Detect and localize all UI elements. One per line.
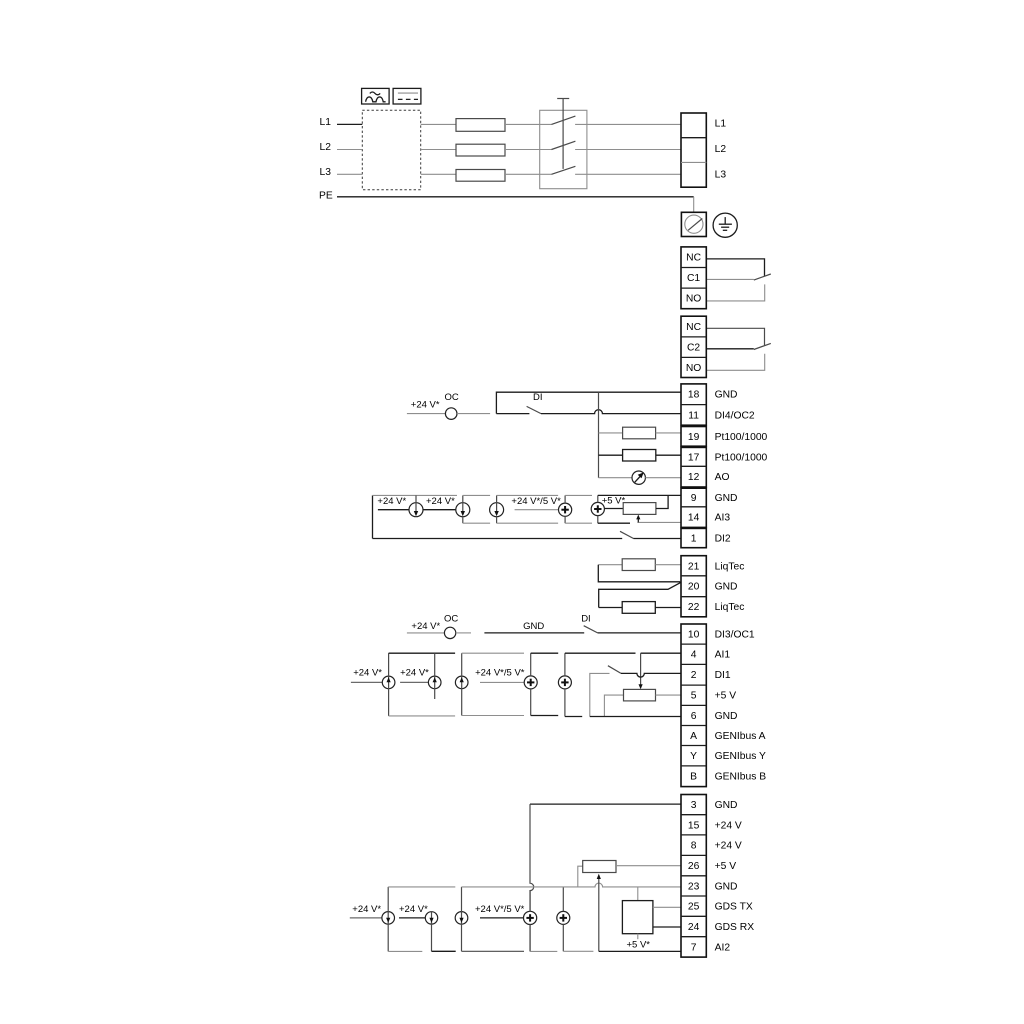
svg-text:AI3: AI3	[715, 513, 731, 524]
svg-text:C1: C1	[687, 273, 700, 284]
svg-text:NO: NO	[686, 294, 701, 305]
svg-text:2: 2	[691, 670, 697, 681]
svg-text:4: 4	[691, 650, 697, 661]
svg-text:GND: GND	[715, 800, 738, 811]
svg-text:L3: L3	[320, 167, 332, 178]
svg-text:+24 V*/5 V*: +24 V*/5 V*	[475, 904, 525, 915]
svg-text:DI4/OC2: DI4/OC2	[715, 410, 755, 421]
svg-text:DI1: DI1	[715, 670, 731, 681]
svg-text:11: 11	[688, 410, 699, 421]
svg-text:AO: AO	[715, 472, 730, 483]
svg-text:24: 24	[688, 922, 700, 933]
svg-text:L3: L3	[715, 170, 727, 181]
svg-text:+24 V*: +24 V*	[411, 621, 440, 632]
svg-text:+24 V*: +24 V*	[353, 667, 382, 678]
svg-text:GND: GND	[523, 621, 544, 632]
svg-text:GENIbus Y: GENIbus Y	[715, 751, 766, 762]
svg-text:19: 19	[688, 432, 700, 443]
svg-text:NC: NC	[686, 322, 701, 333]
svg-text:+24 V: +24 V	[715, 820, 742, 831]
svg-text:Pt100/1000: Pt100/1000	[715, 452, 768, 463]
svg-text:DI: DI	[533, 392, 543, 403]
svg-text:DI2: DI2	[715, 534, 731, 545]
svg-text:+5 V: +5 V	[715, 691, 737, 702]
svg-text:8: 8	[691, 841, 697, 852]
svg-text:7: 7	[691, 942, 697, 953]
svg-text:GDS RX: GDS RX	[715, 922, 755, 933]
svg-text:GENIbus A: GENIbus A	[715, 731, 766, 742]
svg-text:15: 15	[688, 820, 700, 831]
svg-text:L1: L1	[715, 119, 727, 130]
svg-text:14: 14	[688, 513, 700, 524]
svg-text:+5 V*: +5 V*	[627, 940, 651, 951]
svg-text:Pt100/1000: Pt100/1000	[715, 432, 768, 443]
svg-text:20: 20	[688, 582, 700, 593]
svg-text:18: 18	[688, 390, 700, 401]
svg-text:+24 V*: +24 V*	[426, 496, 455, 507]
svg-text:22: 22	[688, 602, 700, 613]
svg-text:12: 12	[688, 472, 700, 483]
svg-text:+24 V*: +24 V*	[411, 400, 440, 411]
svg-text:DI3/OC1: DI3/OC1	[715, 630, 755, 641]
svg-text:L2: L2	[320, 142, 332, 153]
svg-text:+24 V: +24 V	[715, 841, 742, 852]
svg-text:9: 9	[691, 493, 697, 504]
svg-text:LiqTec: LiqTec	[715, 561, 745, 572]
svg-text:6: 6	[691, 711, 697, 722]
svg-text:+5 V: +5 V	[715, 861, 737, 872]
svg-text:+24 V*: +24 V*	[377, 496, 406, 507]
svg-text:+24 V*: +24 V*	[399, 904, 428, 915]
svg-text:GND: GND	[715, 881, 738, 892]
svg-text:+24 V*: +24 V*	[400, 667, 429, 678]
svg-text:+24 V*/5 V*: +24 V*/5 V*	[475, 667, 525, 678]
svg-text:DI: DI	[581, 614, 591, 625]
svg-text:+24 V*: +24 V*	[352, 904, 381, 915]
svg-text:B: B	[690, 772, 697, 783]
svg-text:10: 10	[688, 630, 700, 641]
svg-text:1: 1	[691, 534, 697, 545]
svg-text:Y: Y	[690, 751, 697, 762]
svg-text:AI1: AI1	[715, 650, 731, 661]
svg-text:PE: PE	[319, 191, 333, 202]
svg-text:GND: GND	[715, 493, 738, 504]
svg-text:GND: GND	[715, 711, 738, 722]
svg-text:GND: GND	[715, 390, 738, 401]
svg-text:AI2: AI2	[715, 942, 731, 953]
svg-text:+5 V*: +5 V*	[602, 496, 626, 507]
svg-text:OC: OC	[444, 614, 458, 625]
svg-text:17: 17	[688, 452, 700, 463]
svg-text:GND: GND	[715, 582, 738, 593]
svg-text:NC: NC	[686, 253, 701, 264]
svg-text:L2: L2	[715, 144, 727, 155]
svg-text:NO: NO	[686, 363, 701, 374]
svg-text:26: 26	[688, 861, 700, 872]
svg-text:3: 3	[691, 800, 697, 811]
svg-text:23: 23	[688, 881, 700, 892]
svg-text:A: A	[690, 731, 697, 742]
svg-text:LiqTec: LiqTec	[715, 602, 745, 613]
svg-text:OC: OC	[445, 392, 459, 403]
svg-text:GDS TX: GDS TX	[715, 902, 753, 913]
svg-text:+24 V*/5 V*: +24 V*/5 V*	[511, 496, 561, 507]
svg-text:25: 25	[688, 902, 700, 913]
svg-text:GENIbus B: GENIbus B	[715, 772, 767, 783]
svg-text:L1: L1	[320, 117, 332, 128]
svg-text:5: 5	[691, 691, 697, 702]
svg-text:21: 21	[688, 561, 700, 572]
svg-text:C2: C2	[687, 343, 700, 354]
